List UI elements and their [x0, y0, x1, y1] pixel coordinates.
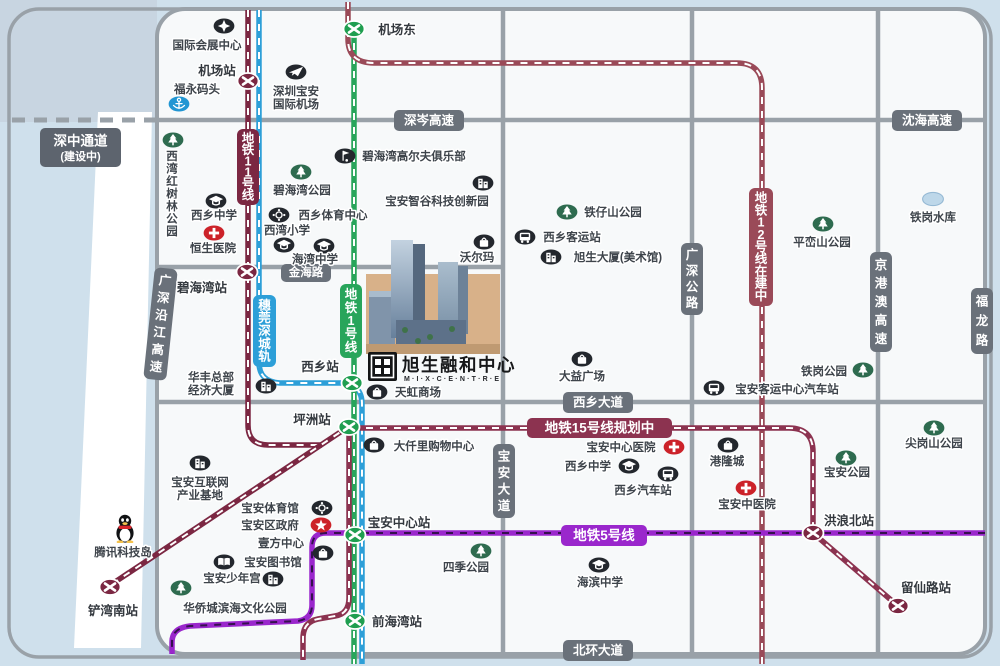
poi-label: 西乡中学 — [565, 459, 611, 473]
road-shenhai-expwy-label: 沈海高速 — [902, 113, 953, 128]
metro-suwanshen-rail: 穗莞深城轨 — [253, 295, 276, 367]
poi-label-line: 深圳宝安 — [273, 84, 319, 98]
building-icon — [190, 455, 211, 470]
sports-icon — [312, 500, 333, 515]
road-baoan-avenue-label-char: 安 — [498, 465, 511, 480]
poi-label: 大仟里购物中心 — [394, 439, 475, 453]
hospital-icon — [736, 480, 757, 495]
metro-line1-label-char: 号 — [345, 326, 358, 341]
metro-line11: 地铁11号线 — [237, 129, 259, 205]
metro-suwanshen-rail-label-char: 轨 — [258, 349, 271, 364]
metro-line1-label-char: 1 — [348, 314, 355, 328]
poi-label: 海滨中学 — [577, 575, 623, 589]
road-guangshen-highway-label-char: 公 — [686, 280, 699, 294]
road-guangshen-highway-label-char: 路 — [686, 295, 699, 310]
reservoir-icon — [923, 192, 944, 205]
road-jinggangao-expwy-label-char: 速 — [875, 331, 888, 346]
poi-label-line: 宝安互联网 — [171, 475, 229, 489]
poi-label: 旭生大厦(美术馆) — [573, 250, 662, 264]
poi-label-line: 华丰总部 — [188, 370, 234, 384]
project-logo-mark — [368, 352, 397, 381]
poi-label: 西乡体育中心 — [299, 208, 368, 222]
station-label: 西乡站 — [301, 359, 339, 374]
project-greenery — [402, 327, 408, 333]
metro-line12-label-char: 中 — [755, 288, 768, 303]
project-greenery — [415, 338, 421, 344]
station-label: 宝安中心站 — [368, 515, 431, 530]
station-label: 前海湾站 — [372, 614, 423, 629]
poi-label-char: 树 — [166, 187, 178, 201]
poi-label: 西乡汽车站 — [614, 483, 672, 497]
road-guangshen-coastal-expwy-label-char: 广 — [158, 272, 172, 288]
school-icon — [314, 238, 335, 253]
water-corner-area — [0, 0, 157, 122]
road-jinggangao-expwy-label-char: 高 — [875, 312, 888, 327]
poi-label-char: 湾 — [166, 162, 178, 176]
poi-label-char: 林 — [166, 199, 178, 213]
tree-icon — [853, 362, 874, 377]
metro-line1-label-char: 线 — [345, 339, 358, 354]
poi-baoan-central-hospital: 宝安中心医院 — [587, 439, 685, 454]
metro-suwanshen-rail-label-char: 莞 — [257, 310, 271, 325]
metro-line11-label-char: 线 — [242, 187, 255, 202]
school-icon — [589, 557, 610, 572]
metro-suwanshen-rail-label-char: 穗 — [258, 297, 271, 312]
road-guangshen-highway-label-char: 深 — [686, 263, 699, 278]
project-greenery — [427, 334, 433, 340]
project-greenery — [449, 326, 455, 332]
poi-tianhong-mall: 天虹商场 — [367, 384, 442, 399]
road-fulong-road: 福龙路 — [971, 288, 993, 354]
road-baoan-avenue-label-char: 宝 — [498, 448, 511, 463]
school-icon — [206, 193, 227, 208]
poi-label: 腾讯科技岛 — [94, 545, 152, 559]
poi-label-char: 园 — [166, 224, 178, 238]
road-jinggangao-expwy-label-char: 京 — [875, 257, 888, 272]
project-name-latin: M·I·X·C·E·N·T·R·E — [404, 376, 501, 383]
station-label: 坪洲站 — [293, 412, 331, 427]
poi-baoan-district-gov: 宝安区政府 — [241, 517, 331, 532]
bus-icon — [515, 229, 536, 244]
tree-icon — [813, 216, 834, 231]
tree-icon — [291, 164, 312, 179]
poi-label-line: 国际机场 — [273, 97, 319, 111]
hospital-icon — [664, 439, 685, 454]
poi-label: 铁岗公园 — [801, 364, 847, 378]
poi-label: 壹方中心 — [258, 536, 304, 550]
shop-icon — [572, 351, 593, 366]
poi-label: 四季公园 — [443, 560, 489, 574]
school-icon — [274, 237, 295, 252]
road-baoan-avenue-label-char: 道 — [498, 498, 511, 513]
location-map: 深岑高速沈海高速金海路西乡大道北环大道宝安大道广深公路京港澳高速福龙路广深沿江高… — [0, 0, 1000, 666]
road-guangshen-coastal-expwy-label-char: 深 — [156, 290, 170, 306]
road-fulong-road-label-char: 路 — [976, 332, 989, 347]
shop-icon — [474, 234, 495, 249]
shop-icon — [364, 437, 385, 452]
building-icon — [256, 378, 277, 393]
poi-label: 天虹商场 — [395, 385, 441, 399]
hospital-icon — [204, 225, 225, 240]
poi-label: 福永码头 — [173, 82, 220, 96]
poi-label: 铁仔山公园 — [584, 205, 642, 219]
bus-icon — [704, 380, 725, 395]
station-qianhaiwanzhan: 前海湾站 — [345, 613, 423, 629]
poi-xixiang-sports-center: 西乡体育中心 — [269, 207, 368, 222]
star-icon — [214, 18, 235, 33]
tree-icon — [924, 420, 945, 435]
road-guangshen-highway-label-char: 广 — [686, 247, 699, 262]
poi-label: 港隆城 — [710, 454, 745, 468]
road-jinhai-road-label: 金海路 — [288, 265, 324, 279]
golf-icon — [335, 148, 356, 163]
poi-label: 国际会展中心 — [173, 38, 242, 52]
metro-suwanshen-rail-label-char: 深 — [258, 323, 271, 338]
plane-icon — [286, 64, 307, 79]
building-icon — [541, 249, 562, 264]
metro-line1: 地铁1号线 — [340, 284, 362, 358]
poi-label: 宝安客运中心汽车站 — [735, 382, 839, 396]
metro-line1-label-char: 地 — [345, 287, 358, 302]
road-beihuan-avenue-label: 北环大道 — [573, 643, 624, 658]
road-guangshen-coastal-expwy-label-char: 江 — [153, 324, 167, 340]
poi-label: 宝安中医院 — [718, 497, 776, 511]
shenzhong-channel-label: 深中通道(建设中) — [40, 128, 121, 167]
poi-label: 宝安公园 — [824, 465, 870, 479]
road-baoan-avenue-label-char: 大 — [498, 481, 511, 496]
metro-line12: 地铁12号线在建中 — [749, 188, 773, 306]
poi-label: 海湾中学 — [292, 252, 338, 266]
anchor-icon — [169, 96, 190, 111]
poi-xixiang-middle-school-2: 西乡中学 — [565, 458, 639, 473]
channel-line2: (建设中) — [60, 149, 101, 163]
shop-icon — [718, 437, 739, 452]
station-label: 机场东 — [378, 22, 416, 37]
road-baoan-avenue: 宝安大道 — [493, 444, 515, 518]
project-logo-cell — [384, 359, 390, 365]
poi-label: 西乡客运站 — [543, 230, 601, 244]
location-map-svg: 深岑高速沈海高速金海路西乡大道北环大道宝安大道广深公路京港澳高速福龙路广深沿江高… — [0, 0, 1000, 666]
poi-label: 宝安区政府 — [241, 518, 299, 532]
tree-icon — [557, 204, 578, 219]
poi-baoan-youth-palace: 宝安少年宫 — [203, 571, 283, 587]
poi-label: 华侨城滨海文化公园 — [183, 601, 287, 615]
poi-label-char: 西 — [166, 150, 178, 163]
poi-label-char: 红 — [166, 174, 178, 188]
gov-icon — [311, 517, 332, 532]
poi-xixiang-passenger-station: 西乡客运站 — [515, 229, 602, 244]
metro-suwanshen-rail-label-char: 城 — [258, 336, 271, 351]
poi-label: 沃尔玛 — [460, 250, 495, 264]
poi-label: 宝安图书馆 — [244, 555, 302, 569]
poi-label: 宝安中心医院 — [587, 440, 656, 454]
station-label: 碧海湾站 — [176, 280, 228, 295]
road-jinggangao-expwy: 京港澳高速 — [870, 252, 892, 352]
project-logo: 旭生融和中心M·I·X·C·E·N·T·R·E — [368, 352, 516, 383]
sports-icon — [269, 207, 290, 222]
road-guangshen-highway: 广深公路 — [681, 243, 703, 315]
project-logo-cell — [384, 368, 390, 374]
road-guangshen-coastal-expwy-label-char: 沿 — [153, 308, 168, 323]
road-guangshen-coastal-expwy-label-char: 高 — [151, 341, 165, 357]
building-icon — [263, 571, 284, 586]
poi-label: 西乡中学 — [191, 208, 237, 222]
metro-line15-label: 地铁15号线规划中 — [545, 420, 655, 436]
poi-label: 铁岗水库 — [910, 210, 956, 224]
poi-label-char: 公 — [166, 213, 178, 226]
tree-icon — [836, 450, 857, 465]
tree-icon — [171, 580, 192, 595]
poi-baoan-library: 宝安图书馆 — [214, 554, 303, 569]
shop-icon — [367, 384, 388, 399]
poi-baoan-gymnasium: 宝安体育馆 — [241, 500, 332, 515]
station-label: 机场站 — [198, 63, 236, 78]
poi-label: 宝安少年宫 — [203, 571, 261, 585]
channel-line1: 深中通道 — [54, 133, 108, 149]
road-xixiang-avenue-label: 西乡大道 — [573, 395, 624, 410]
project-name: 旭生融和中心 — [401, 355, 516, 375]
station-label: 留仙路站 — [901, 580, 952, 595]
station-label: 洪浪北站 — [824, 513, 875, 528]
book-icon — [214, 554, 235, 569]
station-jichangdong: 机场东 — [344, 21, 417, 37]
metro-line1-label-char: 铁 — [345, 300, 358, 315]
tree-icon — [471, 543, 492, 558]
poi-label: 宝安体育馆 — [241, 501, 299, 515]
poi-label: 碧海湾高尔夫俱乐部 — [361, 149, 466, 163]
poi-label: 尖岗山公园 — [905, 436, 963, 450]
poi-label-line: 经济大厦 — [188, 383, 234, 397]
road-fulong-road-label-char: 福 — [975, 294, 989, 309]
project-logo-cell — [375, 359, 381, 365]
metro-line5-label: 地铁5号线 — [573, 527, 635, 543]
poi-label: 西湾小学 — [264, 223, 310, 237]
poi-label-line: 产业基地 — [177, 488, 223, 502]
station-label: 铲湾南站 — [88, 603, 139, 618]
project-logo-cell — [375, 368, 381, 374]
road-shencen-expwy-label: 深岑高速 — [404, 113, 455, 128]
poi-label: 大益广场 — [559, 369, 605, 383]
road-jinggangao-expwy-label-char: 港 — [875, 276, 888, 291]
tree-icon — [163, 132, 184, 147]
school-icon — [619, 458, 640, 473]
shop-icon — [313, 545, 334, 560]
road-guangshen-coastal-expwy-label-char: 速 — [149, 358, 163, 374]
poi-label: 碧海湾公园 — [272, 183, 331, 197]
bus-icon — [658, 466, 679, 481]
road-jinggangao-expwy-label-char: 澳 — [875, 294, 888, 309]
poi-tiezaishan-park: 铁仔山公园 — [557, 204, 642, 219]
road-fulong-road-label-char: 龙 — [975, 313, 989, 328]
building-icon — [473, 175, 494, 190]
poi-label: 恒生医院 — [190, 241, 236, 255]
poi-label: 平峦山公园 — [793, 235, 851, 249]
poi-label: 宝安智谷科技创新园 — [385, 194, 489, 208]
